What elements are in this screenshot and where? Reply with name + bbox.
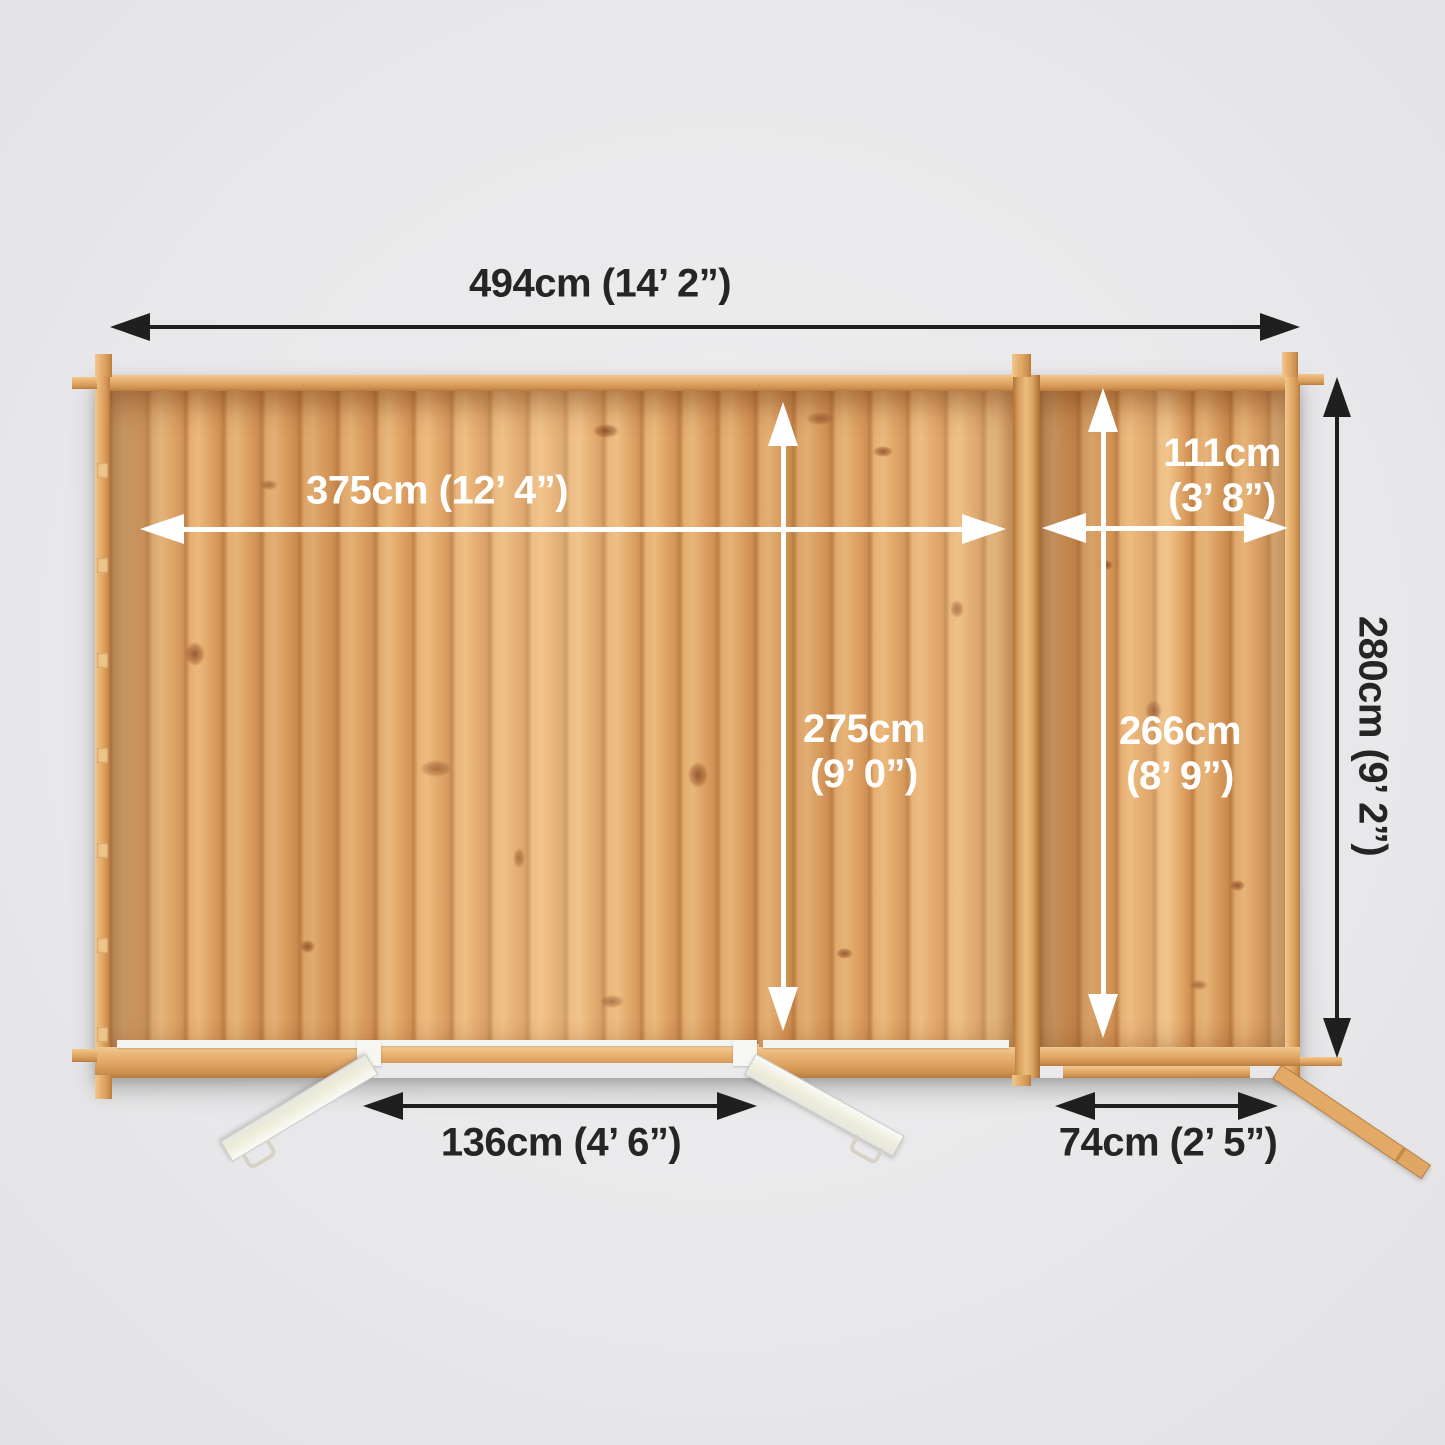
front-wall-left-segment (95, 1047, 365, 1078)
overall-width-arrow (110, 311, 1300, 343)
arrow-head (1260, 313, 1300, 341)
log-joint-notch (97, 558, 108, 573)
window-frame-strip-right (763, 1040, 1009, 1048)
annex-door-width-label: 74cm (2’ 5”) (1059, 1121, 1278, 1166)
arrow-head (1088, 388, 1118, 432)
annex-door-width-arrow (1055, 1091, 1278, 1121)
wood-knot (185, 642, 205, 666)
corner-log-bottom-right-sill (1300, 1057, 1342, 1066)
arrow-head (110, 313, 150, 341)
dimension-line-2: (3’ 8”) (1163, 476, 1281, 521)
wood-knot (1190, 980, 1208, 990)
wood-knot (688, 762, 708, 788)
divider-wall-beam (1013, 375, 1040, 1078)
log-joint-notch (97, 748, 108, 763)
left-wall-beam (95, 375, 110, 1078)
log-joint-notch (97, 1027, 108, 1042)
arrow-shaft (184, 527, 962, 532)
arrow-shaft (150, 325, 1260, 329)
corner-log-top-right-vertical (1282, 352, 1298, 377)
wood-knot (260, 480, 278, 490)
divider-log-bottom-stub (1012, 1075, 1031, 1086)
arrow-head (768, 987, 798, 1031)
arrow-head (1042, 513, 1086, 543)
corner-log-top-left-vertical (95, 354, 112, 377)
arrow-shaft (1095, 1104, 1238, 1108)
arrow-head (140, 514, 184, 544)
main-internal-width-label: 375cm (12’ 4”) (306, 469, 568, 514)
arrow-head (1088, 994, 1118, 1038)
dimension-line-1: 111cm (1163, 431, 1281, 476)
door-handle (241, 1139, 278, 1171)
wood-knot (1230, 880, 1245, 891)
corner-log-bottom-left-vertical (95, 1075, 112, 1099)
dimension-line-2: (9’ 0”) (803, 752, 925, 797)
dimension-line-1: 275cm (803, 707, 925, 752)
main-door-threshold (363, 1044, 759, 1063)
arrow-head (1055, 1092, 1095, 1120)
wood-knot (513, 848, 525, 868)
main-internal-depth-label: 275cm (9’ 0”) (803, 707, 925, 797)
arrow-shaft (1335, 417, 1339, 1018)
wood-knot (420, 760, 452, 777)
arrow-head (717, 1092, 757, 1120)
log-joint-notch (97, 938, 108, 953)
annex-door-open (1272, 1064, 1431, 1179)
annex-internal-width-label: 111cm (3’ 8”) (1163, 431, 1281, 521)
annex-front-sill-lower (1063, 1066, 1250, 1078)
wood-knot (873, 446, 893, 457)
log-joint-notch (97, 843, 108, 858)
main-door-width-label: 136cm (4’ 6”) (441, 1121, 681, 1166)
arrow-head (1238, 1092, 1278, 1120)
main-door-width-arrow (363, 1091, 757, 1121)
main-internal-depth-arrow (766, 402, 800, 1031)
right-wall-beam (1285, 377, 1300, 1078)
arrow-shaft (403, 1104, 717, 1108)
threshold-frame-strip (367, 1040, 757, 1046)
corner-log-bottom-left-horizontal (72, 1049, 97, 1062)
arrow-head (363, 1092, 403, 1120)
annex-internal-depth-arrow (1086, 388, 1120, 1038)
dimension-line-1: 266cm (1119, 709, 1241, 754)
log-joint-notch (97, 463, 108, 478)
door-handle (848, 1134, 885, 1165)
arrow-shaft (1101, 432, 1106, 994)
log-joint-notch (97, 653, 108, 668)
arrow-head (768, 402, 798, 446)
annex-front-sill (1040, 1047, 1300, 1066)
main-internal-width-arrow (140, 512, 1006, 546)
wood-knot (836, 948, 853, 959)
overall-depth-arrow (1321, 377, 1353, 1058)
wood-knot (806, 412, 834, 425)
arrow-head (962, 514, 1006, 544)
corner-log-top-left-horizontal (72, 377, 97, 389)
floorplan-canvas: 494cm (14’ 2”) 280cm (9’ 2”) 375cm (12’ … (0, 0, 1445, 1445)
wood-knot (950, 600, 964, 618)
divider-log-top-stub (1012, 354, 1031, 377)
overall-width-label: 494cm (14’ 2”) (469, 262, 731, 307)
arrow-head (1323, 1018, 1351, 1058)
window-frame-strip-left (117, 1040, 363, 1048)
front-wall-right-segment (755, 1047, 1015, 1078)
wood-knot (593, 424, 619, 438)
annex-internal-depth-label: 266cm (8’ 9”) (1119, 709, 1241, 799)
arrow-shaft (781, 446, 786, 987)
arrow-head (1323, 377, 1351, 417)
dimension-line-2: (8’ 9”) (1119, 754, 1241, 799)
wood-knot (600, 995, 624, 1008)
overall-depth-label: 280cm (9’ 2”) (1350, 616, 1395, 856)
wood-knot (300, 940, 315, 953)
